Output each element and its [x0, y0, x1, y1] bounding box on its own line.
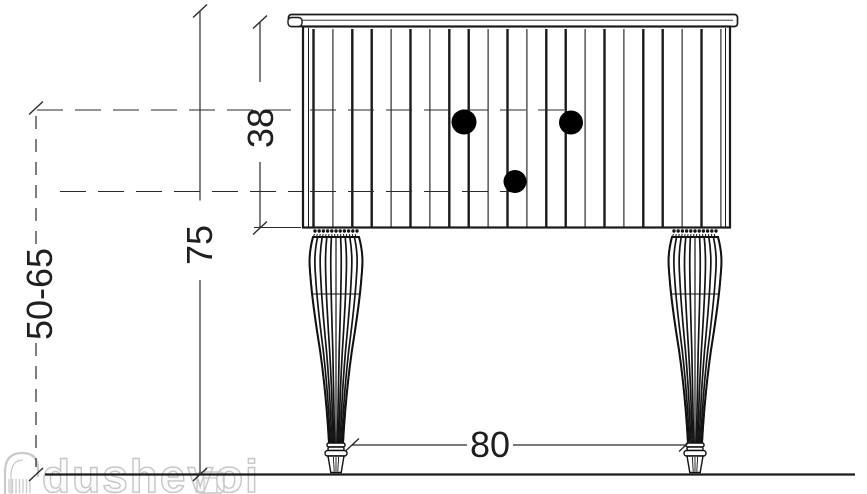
- overall-height-label: 75: [179, 225, 220, 265]
- dimension-installation-height-range: 50-65: [19, 102, 60, 482]
- knob-left: [452, 110, 477, 135]
- leg-foot: [684, 443, 706, 473]
- watermark-text: dushevoi: [42, 450, 260, 494]
- technical-drawing: dushevoi: [0, 0, 867, 494]
- knob-center-lower: [504, 170, 527, 193]
- knob-right: [559, 111, 583, 135]
- shower-icon: [5, 453, 38, 494]
- dimension-body-height: 38: [240, 16, 301, 235]
- dimension-overall-height: 75: [179, 5, 220, 482]
- leg-foot: [325, 443, 347, 473]
- countertop: [288, 15, 738, 27]
- body-height-label: 38: [240, 108, 281, 148]
- dimension-width: 80: [345, 424, 693, 465]
- watermark: dushevoi: [5, 450, 260, 494]
- width-label: 80: [470, 424, 510, 465]
- countertop-nose: [288, 18, 302, 27]
- left-leg: [310, 229, 363, 472]
- right-leg: [669, 229, 722, 472]
- cabinet-body: [303, 27, 730, 228]
- installation-height-range-label: 50-65: [19, 248, 60, 340]
